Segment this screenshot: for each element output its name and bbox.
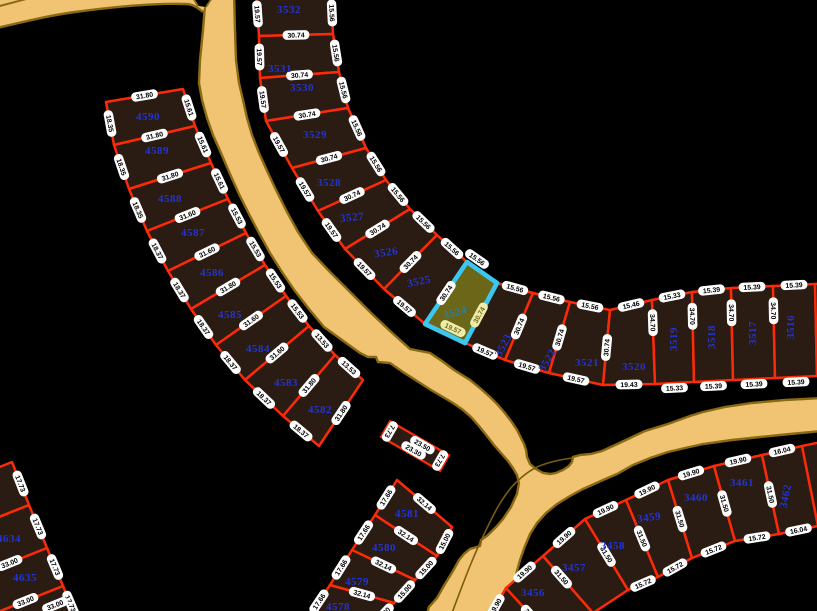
svg-text:3519: 3519 (668, 327, 680, 351)
svg-text:3527: 3527 (340, 211, 365, 225)
svg-text:3530: 3530 (290, 82, 314, 94)
svg-text:30.74: 30.74 (287, 32, 305, 39)
svg-text:3461: 3461 (730, 477, 754, 489)
svg-text:4585: 4585 (218, 309, 242, 321)
svg-text:4581: 4581 (395, 508, 419, 520)
svg-text:3458: 3458 (601, 540, 625, 552)
svg-text:34.70: 34.70 (727, 304, 734, 322)
svg-text:4634: 4634 (0, 533, 21, 545)
svg-text:4578: 4578 (326, 601, 350, 611)
svg-text:3531: 3531 (268, 63, 292, 75)
svg-text:3520: 3520 (622, 361, 646, 373)
svg-text:19.57: 19.57 (255, 48, 262, 66)
svg-text:3521: 3521 (575, 357, 599, 369)
svg-text:3456: 3456 (521, 587, 545, 599)
svg-text:3532: 3532 (277, 4, 301, 16)
svg-text:4583: 4583 (274, 377, 298, 389)
svg-text:15.39: 15.39 (785, 282, 803, 290)
svg-text:15.39: 15.39 (705, 383, 723, 391)
svg-text:19.57: 19.57 (252, 5, 260, 23)
svg-text:34.70: 34.70 (648, 314, 656, 332)
svg-text:3460: 3460 (684, 492, 708, 504)
svg-text:4587: 4587 (181, 227, 205, 239)
svg-text:4589: 4589 (145, 145, 169, 157)
svg-text:4584: 4584 (246, 343, 270, 355)
svg-text:19.43: 19.43 (620, 382, 638, 389)
svg-text:30.74: 30.74 (291, 72, 309, 80)
svg-text:4635: 4635 (13, 572, 37, 584)
svg-text:15.39: 15.39 (743, 284, 761, 292)
svg-text:34.70: 34.70 (688, 308, 695, 326)
svg-text:15.56: 15.56 (327, 4, 335, 22)
svg-text:4590: 4590 (136, 111, 160, 123)
svg-text:34.70: 34.70 (769, 302, 776, 320)
svg-text:4579: 4579 (345, 576, 369, 588)
svg-text:4582: 4582 (308, 404, 332, 416)
svg-text:4586: 4586 (200, 267, 224, 279)
svg-text:3529: 3529 (303, 129, 327, 141)
svg-text:15.39: 15.39 (745, 381, 763, 389)
svg-text:3516: 3516 (785, 315, 797, 339)
svg-text:15.39: 15.39 (787, 379, 805, 387)
svg-text:4588: 4588 (158, 193, 182, 205)
svg-text:3457: 3457 (562, 562, 586, 574)
svg-text:3518: 3518 (706, 325, 718, 349)
svg-text:3528: 3528 (317, 177, 341, 189)
svg-text:4580: 4580 (372, 542, 396, 554)
svg-text:3517: 3517 (747, 321, 759, 345)
svg-text:15.33: 15.33 (666, 385, 684, 393)
